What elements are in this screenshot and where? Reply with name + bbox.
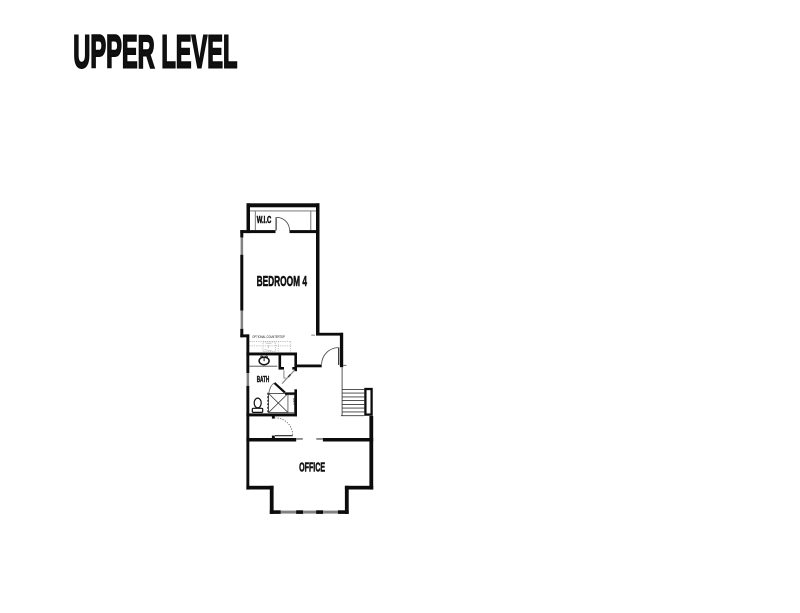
svg-text:UPPER LEVEL: UPPER LEVEL — [73, 26, 237, 78]
svg-text:W.I.C: W.I.C — [257, 215, 272, 226]
svg-text:BEDROOM 4: BEDROOM 4 — [257, 273, 308, 290]
svg-text:SHWR: SHWR — [292, 397, 296, 405]
svg-text:OPTIONAL COUNTERTOP: OPTIONAL COUNTERTOP — [252, 335, 285, 339]
svg-text:BATH: BATH — [257, 374, 270, 384]
svg-text:OFFICE: OFFICE — [299, 460, 325, 475]
